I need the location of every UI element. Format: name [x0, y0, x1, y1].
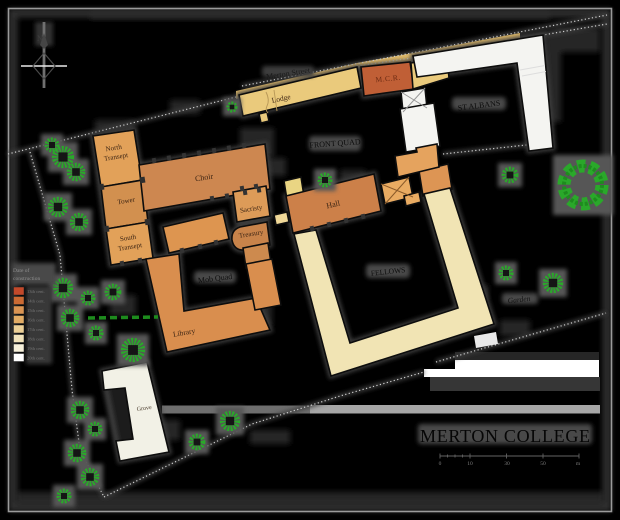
svg-text:13th cent.: 13th cent.: [27, 289, 45, 294]
svg-text:30: 30: [504, 461, 510, 467]
svg-text:m: m: [576, 461, 581, 467]
svg-text:N: N: [37, 34, 43, 43]
svg-text:14th cent.: 14th cent.: [27, 299, 45, 304]
svg-text:MERTON COLLEGE: MERTON COLLEGE: [420, 426, 590, 446]
svg-text:16th cent.: 16th cent.: [27, 318, 45, 323]
svg-text:10: 10: [467, 461, 473, 467]
svg-text:15th cent.: 15th cent.: [27, 308, 45, 313]
svg-text:20th cent.: 20th cent.: [27, 356, 45, 361]
svg-text:Date of: Date of: [13, 267, 30, 274]
svg-text:17th cent.: 17th cent.: [27, 327, 45, 332]
svg-text:18th cent.: 18th cent.: [27, 337, 45, 342]
svg-text:19th cent.: 19th cent.: [27, 346, 45, 351]
svg-text:50: 50: [540, 461, 546, 467]
svg-text:0: 0: [439, 461, 442, 467]
svg-text:construction: construction: [13, 276, 40, 282]
